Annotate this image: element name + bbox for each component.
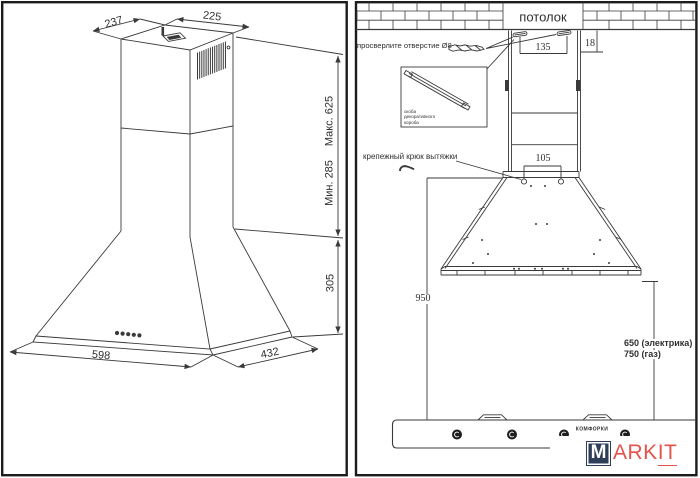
hood-isometric-drawing: [10, 19, 343, 367]
dim-height-min: Мин. 285: [325, 160, 336, 206]
dimension-lines: [10, 19, 343, 367]
control-buttons: [115, 331, 142, 338]
logo-m-box: M: [586, 441, 611, 466]
installation-manual-page: 237 225 Макс. 625 Мин. 285 305 598 432 п…: [0, 0, 700, 478]
bracket-caption-line3: короба: [404, 120, 450, 125]
dim-top-depth: 225: [202, 10, 222, 23]
dim-canopy-height: 305: [326, 274, 337, 292]
clearance-electric: 650 (электрика): [623, 339, 693, 348]
hook-note: крепежный крюк вытяжки: [363, 153, 457, 161]
dim-mount-height: 950: [414, 294, 433, 304]
logo-ark: ARK: [613, 441, 658, 465]
drill-note: просверлите отверстие Ø8: [357, 42, 452, 50]
brand-logo: M ARKIT: [550, 436, 694, 470]
dim-ceiling-offset: 18: [585, 39, 595, 49]
decorative-duct-bracket: [408, 72, 469, 109]
logo-it-underlined: IT: [658, 441, 678, 466]
technical-drawing-canvas: [0, 0, 700, 478]
vent-grille: [198, 41, 226, 79]
drill-bit-icon: [449, 45, 484, 51]
clearance-gas: 750 (газ): [623, 350, 662, 359]
hook-icon: [400, 166, 414, 171]
dim-height-max: Макс. 625: [325, 96, 336, 146]
dim-hook-spacing: 105: [534, 154, 553, 164]
panel-borders: [2, 2, 696, 475]
logo-wordmark: ARKIT: [613, 441, 677, 466]
ceiling-label: потолок: [519, 11, 566, 24]
installation-diagram: [356, 2, 696, 448]
burners-label: комфорки: [576, 428, 608, 433]
bracket-caption: скоба декоративного короба: [404, 109, 450, 125]
dim-base-width: 598: [91, 350, 110, 362]
dim-bracket-spacing: 135: [534, 43, 553, 53]
